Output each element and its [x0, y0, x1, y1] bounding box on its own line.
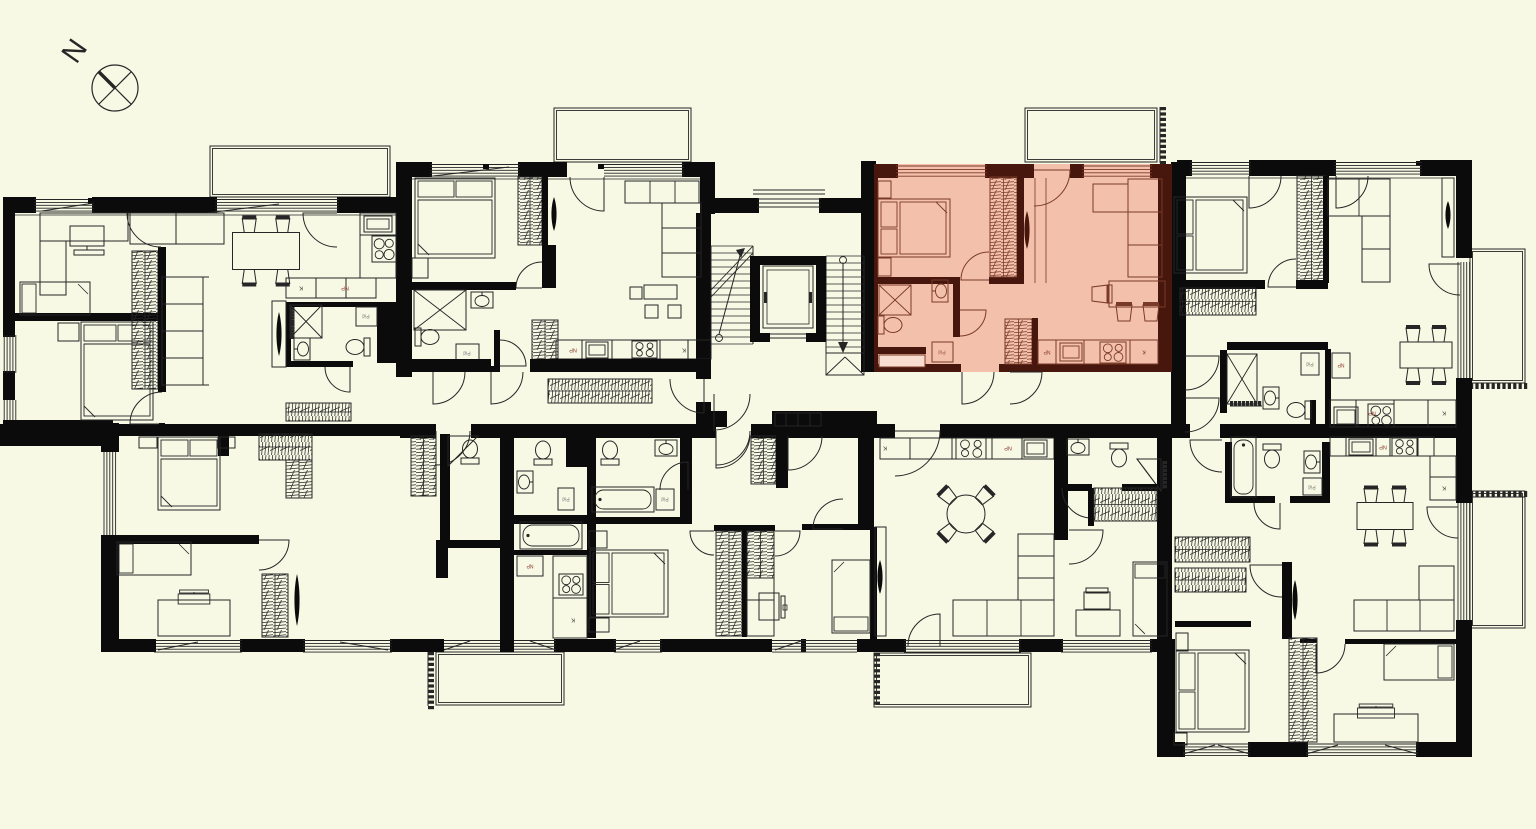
- svg-text:NP: NP: [1004, 445, 1012, 451]
- svg-text:K: K: [1442, 410, 1446, 416]
- svg-text:Pid: Pid: [661, 496, 668, 502]
- svg-text:NP: NP: [1043, 349, 1051, 355]
- svg-text:K: K: [682, 347, 686, 353]
- svg-text:NP: NP: [1337, 362, 1345, 368]
- svg-text:K: K: [299, 285, 303, 291]
- svg-text:NP: NP: [341, 285, 349, 291]
- svg-text:Pid: Pid: [1306, 361, 1313, 367]
- svg-text:Pid: Pid: [1308, 484, 1315, 490]
- svg-text:K: K: [571, 617, 575, 623]
- svg-text:Pid: Pid: [938, 349, 945, 355]
- svg-text:Pid: Pid: [562, 496, 569, 502]
- svg-text:Pid: Pid: [463, 350, 470, 356]
- svg-text:NP: NP: [526, 563, 534, 569]
- svg-text:NP: NP: [569, 347, 577, 353]
- svg-text:K: K: [1442, 485, 1446, 491]
- svg-text:NP: NP: [1368, 410, 1376, 416]
- svg-text:Pid: Pid: [362, 313, 369, 319]
- svg-text:NP: NP: [1379, 444, 1387, 450]
- svg-text:K: K: [883, 445, 887, 451]
